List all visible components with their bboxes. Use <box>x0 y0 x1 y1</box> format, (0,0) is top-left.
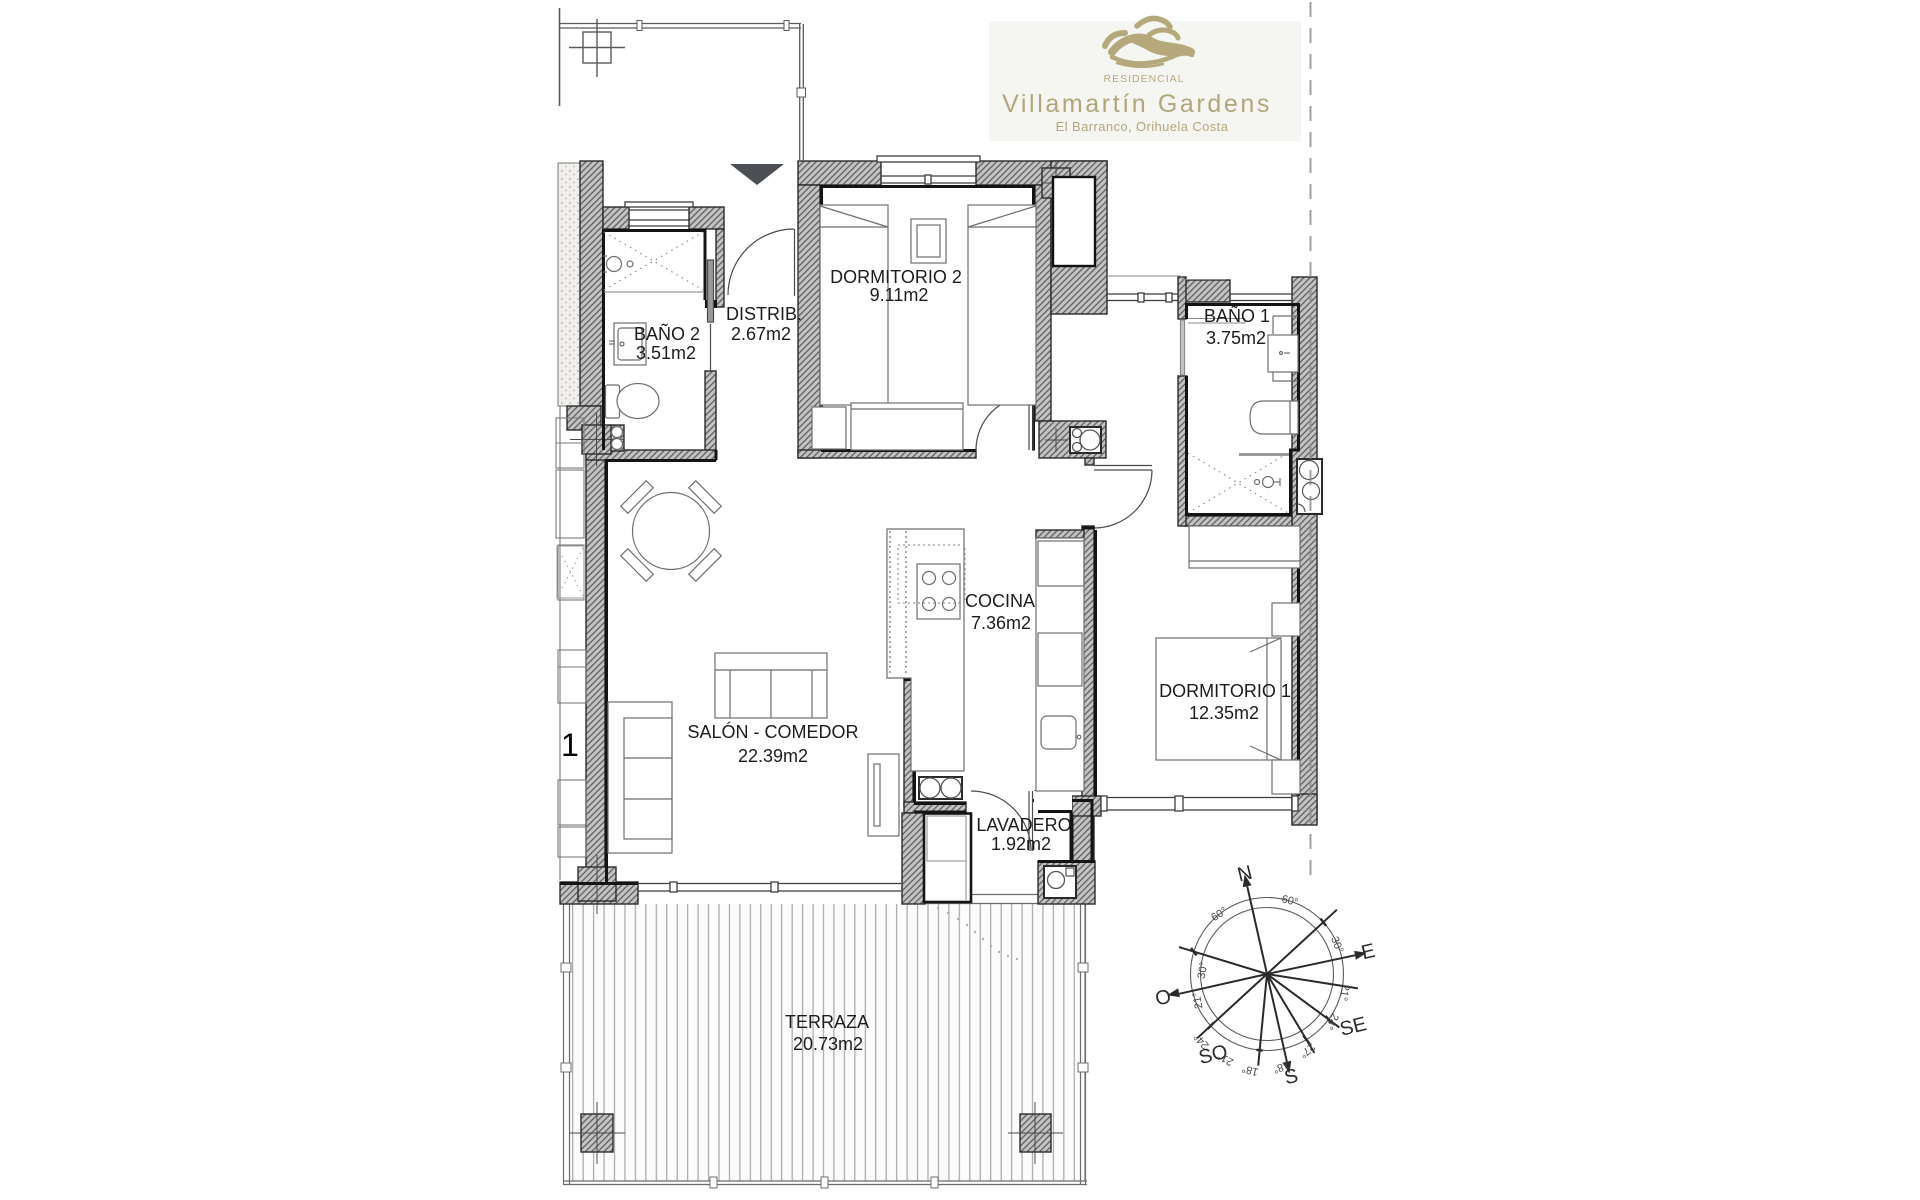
svg-text:DORMITORIO 1: DORMITORIO 1 <box>1159 681 1291 701</box>
svg-text:3.51m2: 3.51m2 <box>636 343 696 363</box>
svg-text:Villamartín Gardens: Villamartín Gardens <box>1002 90 1272 118</box>
svg-text:DISTRIB.: DISTRIB. <box>726 304 802 324</box>
svg-text:El Barranco, Orihuela Costa: El Barranco, Orihuela Costa <box>1056 119 1229 134</box>
svg-text:RESIDENCIAL: RESIDENCIAL <box>1103 73 1184 85</box>
svg-text:DORMITORIO 2: DORMITORIO 2 <box>830 267 962 287</box>
svg-text:7.36m2: 7.36m2 <box>971 613 1031 633</box>
svg-text:BAÑO 1: BAÑO 1 <box>1204 305 1270 326</box>
svg-text:SALÓN - COMEDOR: SALÓN - COMEDOR <box>687 721 858 742</box>
svg-text:TERRAZA: TERRAZA <box>785 1012 869 1032</box>
svg-text:20.73m2: 20.73m2 <box>793 1034 863 1054</box>
svg-text:COCINA: COCINA <box>965 591 1035 611</box>
svg-text:12.35m2: 12.35m2 <box>1189 703 1259 723</box>
svg-text:1.92m2: 1.92m2 <box>991 834 1051 854</box>
svg-text:BAÑO 2: BAÑO 2 <box>634 323 700 344</box>
svg-text:2.67m2: 2.67m2 <box>731 324 791 344</box>
svg-text:9.11m2: 9.11m2 <box>870 285 929 305</box>
svg-text:22.39m2: 22.39m2 <box>738 746 808 766</box>
svg-text:LAVADERO: LAVADERO <box>976 815 1071 835</box>
svg-text:1: 1 <box>561 727 579 763</box>
svg-text:3.75m2: 3.75m2 <box>1206 328 1266 348</box>
